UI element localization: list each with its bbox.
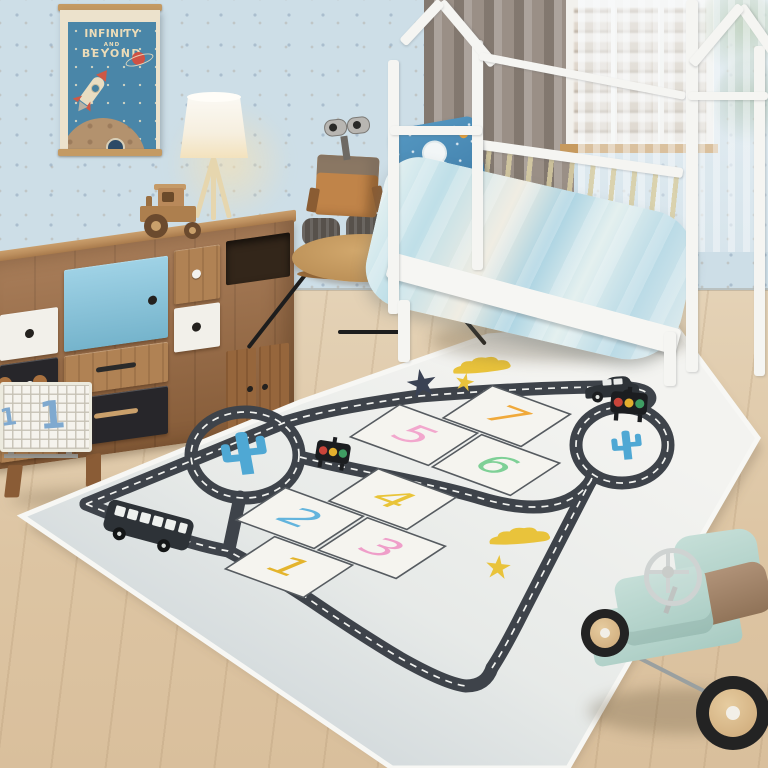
bed-leg (398, 300, 410, 362)
steering-wheel (644, 548, 702, 606)
wire-basket: 1 1 (0, 382, 92, 452)
star-icon-yellow: ★ (482, 547, 515, 588)
bed-leg (664, 332, 676, 386)
basket-number-side: 1 (0, 402, 19, 432)
basket-number-front: 1 (37, 392, 66, 438)
bed-post (388, 60, 399, 314)
canopy-crossbar (688, 92, 768, 100)
robot-body (314, 154, 379, 217)
kids-room-photo: INFINITY AND BEYOND (0, 0, 768, 768)
bed-post (472, 40, 483, 270)
toy-car-wheel (696, 676, 768, 750)
toy-car-wheel (581, 609, 629, 657)
robot-eyes (323, 116, 370, 137)
bed-crossbar (390, 126, 482, 135)
